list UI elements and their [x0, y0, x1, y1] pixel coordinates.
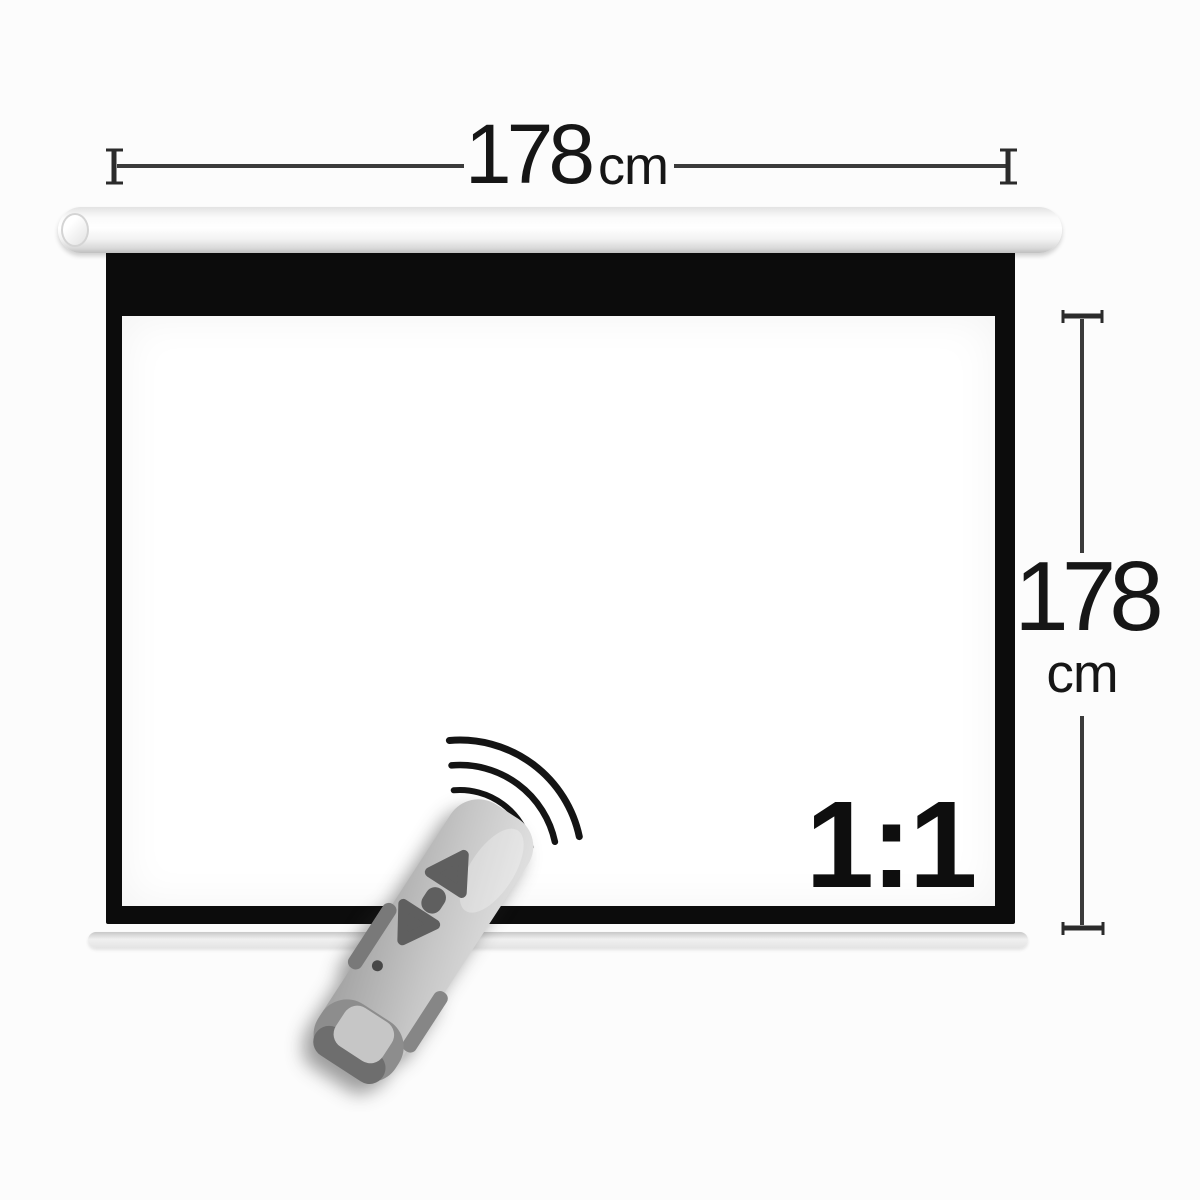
bottom-slat: [88, 932, 1028, 948]
height-tick-bottom-icon: [1062, 922, 1104, 935]
height-dimension-value: 178: [1008, 547, 1163, 645]
width-tick-left-icon: [106, 149, 123, 184]
product-diagram: 178 cm 178 cm 1:1: [0, 0, 1200, 1200]
width-dimension-unit: cm: [596, 139, 670, 193]
remote-control: [371, 785, 477, 1095]
width-dimension-value: 178: [455, 112, 600, 196]
screen-housing: [58, 207, 1062, 253]
aspect-ratio-label: 1:1: [798, 784, 982, 907]
height-tick-top-icon: [1062, 310, 1103, 323]
housing-end-cap: [61, 213, 89, 247]
width-tick-right-icon: [1000, 149, 1017, 184]
height-dimension-unit: cm: [1008, 646, 1156, 701]
